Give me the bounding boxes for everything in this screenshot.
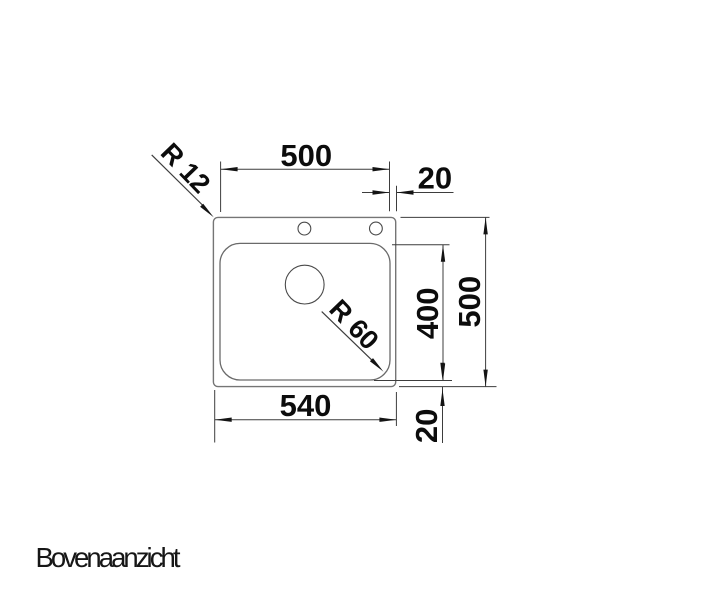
svg-text:20: 20 xyxy=(418,160,452,195)
svg-text:540: 540 xyxy=(280,388,332,423)
svg-text:400: 400 xyxy=(410,287,445,339)
svg-text:R 60: R 60 xyxy=(323,294,384,356)
svg-text:Bovenaanzicht: Bovenaanzicht xyxy=(36,542,181,573)
svg-text:500: 500 xyxy=(280,138,332,173)
svg-text:R 12: R 12 xyxy=(155,137,216,199)
svg-text:500: 500 xyxy=(452,276,487,328)
svg-text:20: 20 xyxy=(409,409,444,443)
